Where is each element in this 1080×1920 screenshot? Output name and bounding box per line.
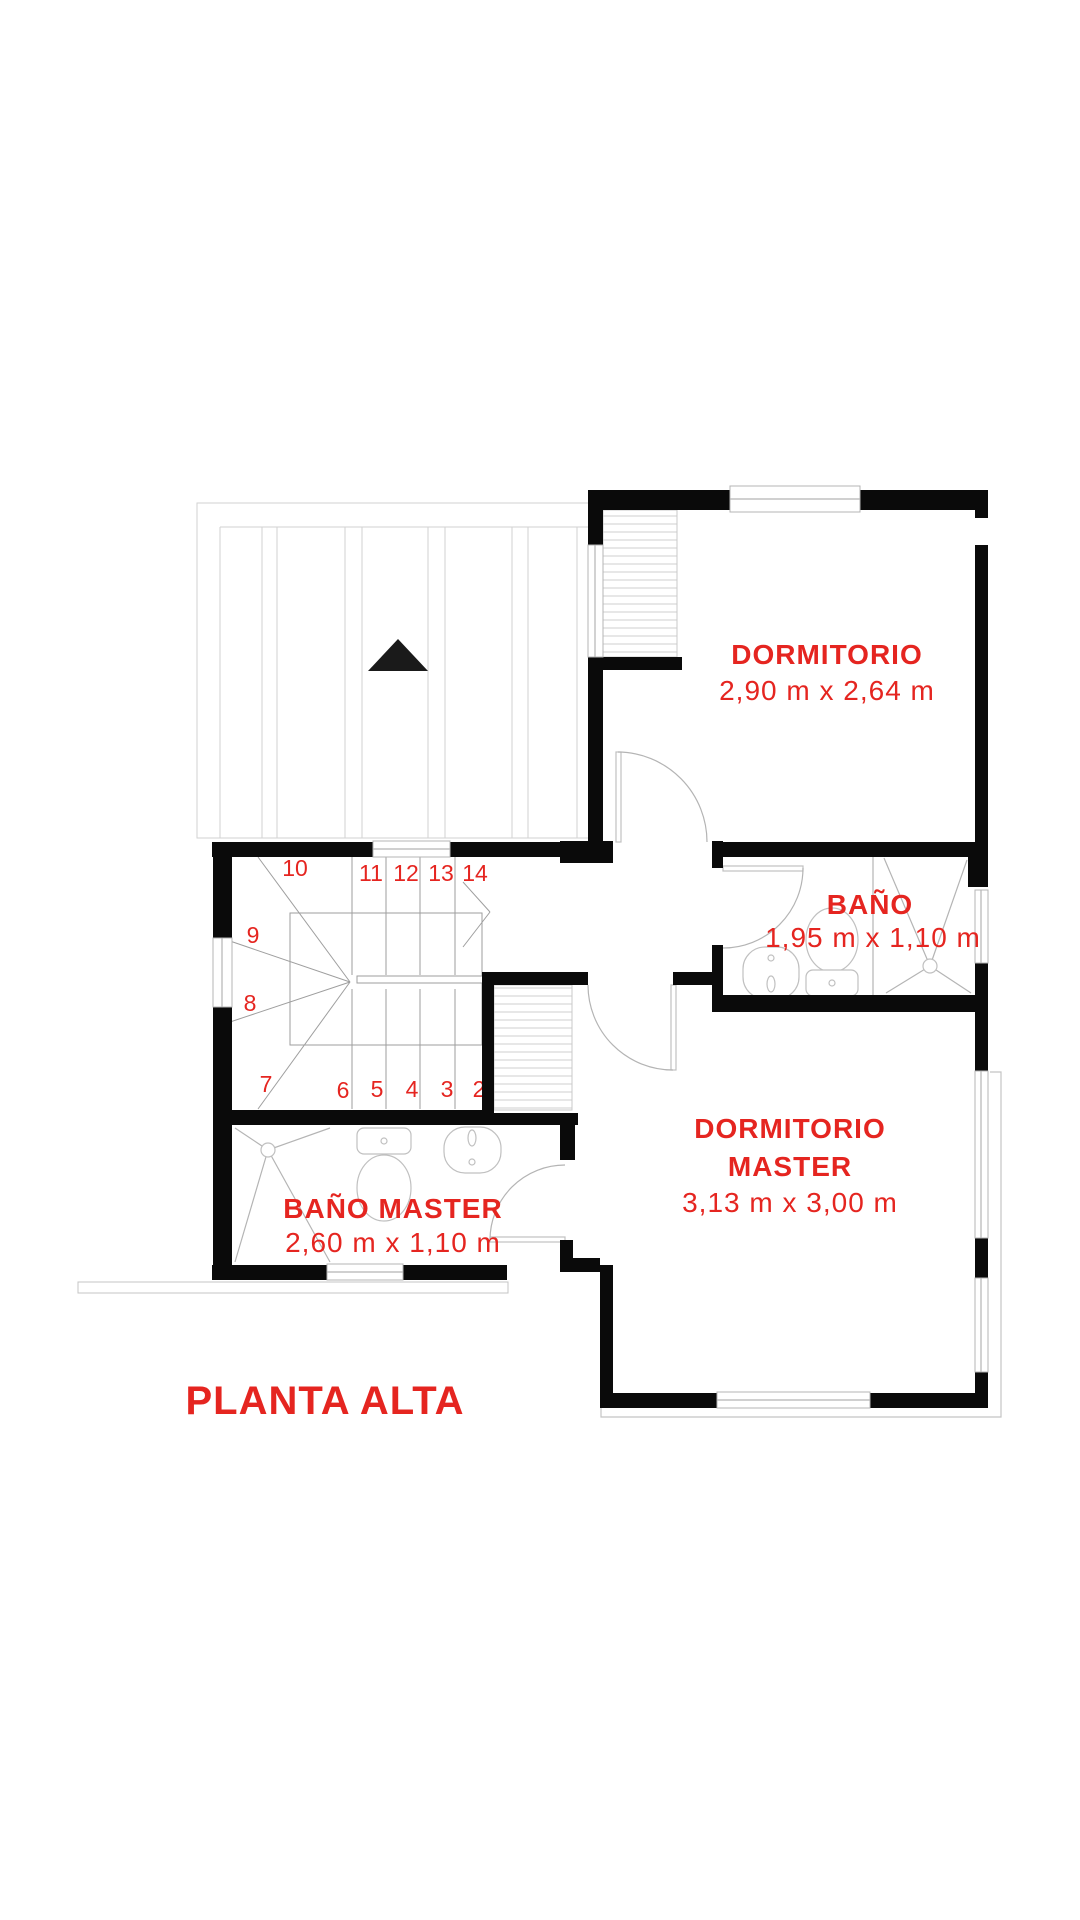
dormitorio-dims: 2,90 m x 2,64 m bbox=[719, 675, 935, 706]
staircase: 2 3 4 5 6 7 8 9 10 11 12 13 14 bbox=[227, 855, 490, 1109]
window-bano-master-south bbox=[327, 1264, 403, 1280]
dormitorio-master-dims: 3,13 m x 3,00 m bbox=[682, 1187, 898, 1218]
step-number: 7 bbox=[260, 1071, 273, 1097]
step-number: 4 bbox=[406, 1076, 419, 1102]
bano-master-label: BAÑO MASTER bbox=[283, 1193, 502, 1224]
bano-dims: 1,95 m x 1,10 m bbox=[765, 922, 981, 953]
window-dormitorio-west bbox=[588, 545, 603, 657]
page-title: PLANTA ALTA bbox=[185, 1379, 464, 1423]
step-number: 3 bbox=[441, 1076, 454, 1102]
step-number: 9 bbox=[247, 922, 260, 948]
bano-label: BAÑO bbox=[827, 889, 913, 920]
stairwell-void bbox=[603, 510, 677, 657]
dormitorio-master-label-line2: MASTER bbox=[728, 1151, 852, 1182]
step-number: 5 bbox=[371, 1076, 384, 1102]
step-number: 13 bbox=[428, 860, 454, 886]
roof-area bbox=[197, 503, 590, 838]
window-stair-west bbox=[213, 938, 232, 1007]
dormitorio-label: DORMITORIO bbox=[731, 639, 922, 670]
stair-direction-arrow-icon bbox=[463, 882, 490, 947]
step-number: 6 bbox=[337, 1077, 350, 1103]
step-number: 11 bbox=[359, 860, 383, 886]
dormitorio-master-label-line1: DORMITORIO bbox=[694, 1113, 885, 1144]
window-dormitorio-north bbox=[730, 486, 860, 512]
step-number: 10 bbox=[282, 855, 308, 881]
window-stair-north bbox=[373, 841, 450, 857]
stair-void-box bbox=[494, 985, 572, 1110]
window-dormitorio-master-east-2 bbox=[975, 1278, 988, 1372]
roof-ridge-icon bbox=[368, 639, 428, 671]
stair-handrail bbox=[357, 976, 488, 983]
window-dormitorio-master-east-1 bbox=[975, 1071, 988, 1238]
window-dormitorio-master-south bbox=[717, 1392, 870, 1408]
sink-master-fixture bbox=[444, 1127, 501, 1173]
bano-master-dims: 2,60 m x 1,10 m bbox=[285, 1227, 501, 1258]
sink-fixture bbox=[743, 947, 799, 999]
door-dormitorio-master bbox=[588, 985, 676, 1070]
step-number: 14 bbox=[462, 860, 488, 886]
door-dormitorio bbox=[616, 752, 707, 842]
step-number: 8 bbox=[244, 990, 257, 1016]
floor-plan: 2 3 4 5 6 7 8 9 10 11 12 13 14 bbox=[0, 0, 1080, 1920]
step-number: 12 bbox=[393, 860, 419, 886]
